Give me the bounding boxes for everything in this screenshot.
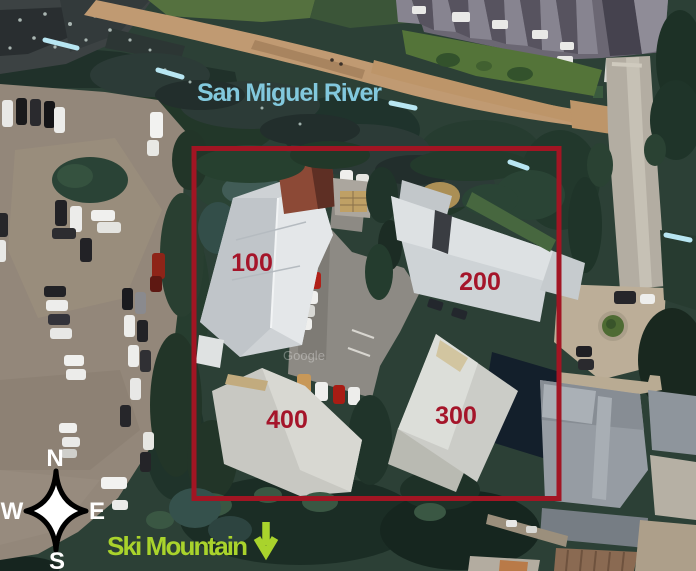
svg-text:Ski Mountain: Ski Mountain bbox=[107, 531, 248, 561]
svg-text:N: N bbox=[46, 445, 63, 472]
svg-text:E: E bbox=[89, 498, 105, 525]
svg-text:400: 400 bbox=[266, 406, 308, 434]
svg-text:San Miguel River: San Miguel River bbox=[197, 79, 382, 107]
svg-text:300: 300 bbox=[435, 402, 477, 430]
svg-text:S: S bbox=[49, 548, 65, 571]
svg-text:Google: Google bbox=[283, 348, 325, 363]
svg-text:100: 100 bbox=[231, 249, 273, 277]
svg-text:W: W bbox=[1, 498, 24, 525]
svg-text:200: 200 bbox=[459, 268, 501, 296]
